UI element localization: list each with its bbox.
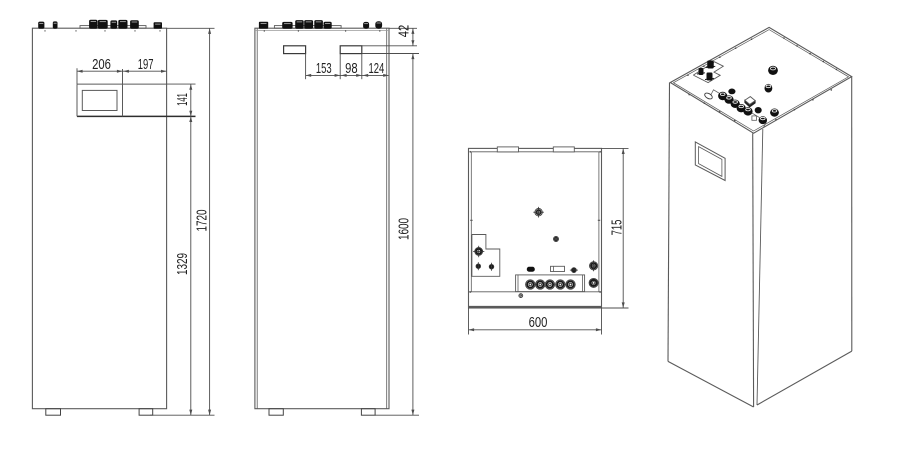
svg-text:98: 98 — [345, 61, 358, 77]
svg-text:42: 42 — [396, 25, 412, 38]
svg-text:206: 206 — [92, 57, 111, 73]
svg-text:124: 124 — [369, 61, 385, 77]
svg-text:715: 715 — [609, 220, 625, 236]
svg-text:600: 600 — [529, 315, 548, 331]
svg-text:1720: 1720 — [195, 209, 211, 231]
svg-text:141: 141 — [175, 93, 191, 106]
svg-text:197: 197 — [138, 57, 154, 73]
svg-text:1329: 1329 — [175, 253, 191, 275]
svg-text:153: 153 — [316, 61, 332, 77]
svg-text:1600: 1600 — [397, 218, 413, 240]
